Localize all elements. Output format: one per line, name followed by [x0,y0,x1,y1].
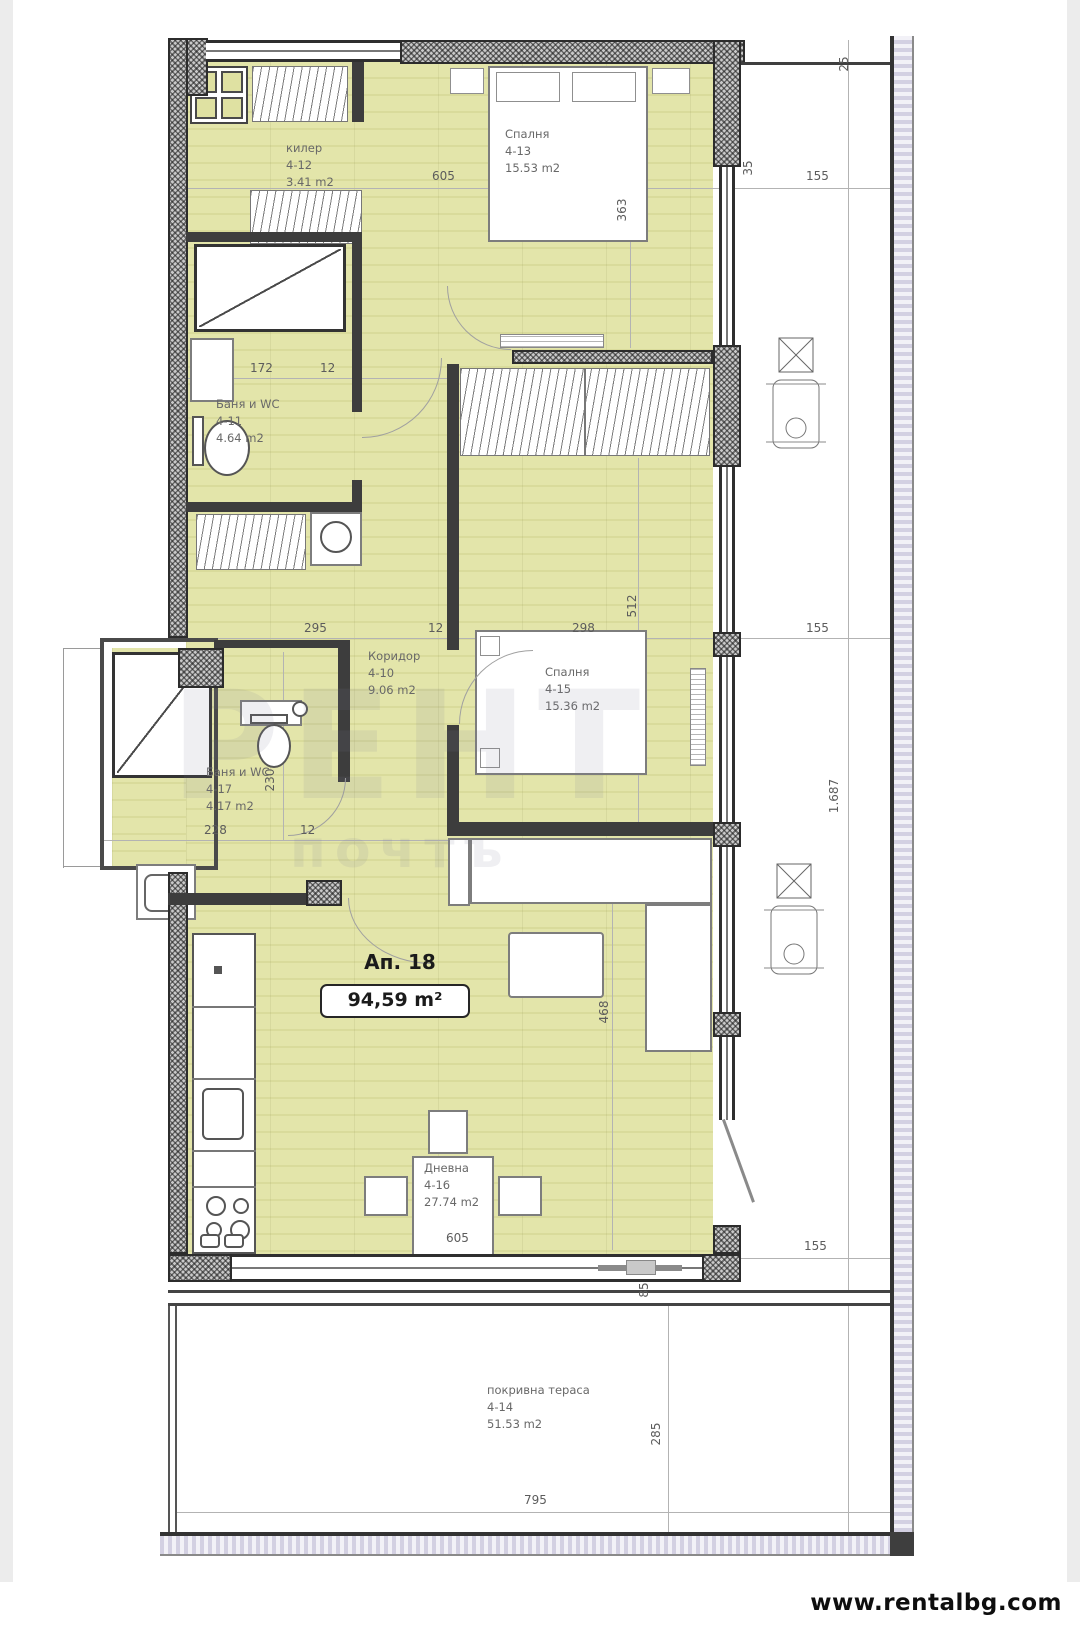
room-area: 15.53 m2 [505,160,560,177]
bathtub [194,244,346,332]
dim-line-right-vertical [848,40,849,1540]
room-area: 27.74 m2 [424,1194,479,1211]
radiator [500,334,604,348]
dim-label-85: 85 [638,1272,650,1308]
footer-bar: www.rentalbg.com [0,1582,1080,1643]
room-code: 4-14 [487,1399,590,1416]
dim-label-605-bottom: 605 [446,1232,469,1244]
shaft-cell [195,97,217,119]
dim-label-363: 363 [616,192,628,228]
hall-cabinet [196,514,306,570]
dim-line-468 [612,847,613,1250]
room-code: 4-11 [216,413,280,430]
room-area: 51.53 m2 [487,1416,590,1433]
dim-label-512: 512 [626,588,638,624]
dim-label-155-top: 155 [806,170,829,182]
room-label-bath1: Баня и WC 4-11 4.64 m2 [216,396,280,447]
coffee-table [508,932,604,998]
wall-bath1-top [186,232,362,242]
wardrobe-divider [584,368,586,456]
stove-burner [233,1198,249,1214]
window-living [719,847,735,1012]
dim-line-low-margin [741,1258,890,1259]
wall-bedroom1-bottom [512,350,713,364]
dim-label-155-low: 155 [804,1240,827,1252]
watermark-big: РЕНТ [170,660,650,834]
dim-label-795: 795 [524,1494,547,1506]
room-name: Дневна [424,1160,479,1177]
wall-corridor-living [168,893,322,905]
room-area: 3.41 m2 [286,174,334,191]
wall-bath2-top [214,640,350,648]
site-url: www.rentalbg.com [810,1590,1062,1616]
room-label-living: Дневна 4-16 27.74 m2 [424,1160,479,1211]
window-bedroom2 [719,657,735,822]
wall-right-pier [713,1012,741,1037]
terrace-left-wall [168,1306,177,1532]
terrace-step-band [168,1290,912,1306]
counter-divider [192,1186,256,1188]
dim-label-172: 172 [250,362,273,374]
counter-divider [192,1078,256,1080]
stove-burner [206,1196,226,1216]
room-label-bedroom1: Спалня 4-13 15.53 m2 [505,126,560,177]
annex-line [63,648,64,868]
wall-left-lower [168,872,188,1254]
window-bedroom1 [719,167,735,345]
shaft-cell [221,71,243,93]
wall-corridor-bedroom2 [447,364,459,650]
wall-right-pier [713,345,741,467]
kitchen-sink [202,1088,244,1140]
drain-symbol [764,336,828,454]
wall-top [400,40,745,64]
window-top [206,40,402,62]
dim-label-298: 298 [572,622,595,634]
bathtub-diagonal [199,249,341,327]
room-code: 4-13 [505,143,560,160]
room-code: 4-12 [286,157,334,174]
page-left-margin [0,0,13,1643]
terrace-parapet-bottom [160,1532,912,1556]
watermark-small: почтъ [290,820,512,880]
dim-line-terrace-width [168,1512,890,1513]
double-sink [200,1234,220,1248]
dim-label-12-b: 12 [428,622,443,634]
drain-symbol [762,862,826,980]
wall-pier [306,880,342,906]
wall-bottom-pier-right [702,1254,741,1282]
wall-right-pier [713,40,741,167]
room-label-storage: килер 4-12 3.41 m2 [286,140,334,191]
pillow [480,636,500,656]
counter-divider [192,1006,256,1008]
apartment-title: Ап. 18 [330,950,470,974]
terrace-parapet-right [890,36,914,1556]
terrace-door-leaf [722,1119,755,1203]
pillow [496,72,560,102]
washbasin-1 [190,338,234,402]
chair [498,1176,542,1216]
floor-plan-page: килер 4-12 3.41 m2 Спалня 4-13 15.53 m2 … [0,0,1080,1643]
wall-left-upper [168,38,188,638]
toilet-tank [192,416,204,466]
dim-label-295: 295 [304,622,327,634]
room-area: 4.64 m2 [216,430,280,447]
window-right [719,467,735,632]
window-living-2 [719,1037,735,1120]
room-name: Баня и WC [216,396,280,413]
washing-machine-drum [320,521,352,553]
dim-label-155-mid: 155 [806,622,829,634]
pillow [572,72,636,102]
parapet-corner [890,1532,914,1556]
appliance-knob [214,966,222,974]
sofa-side [645,904,712,1052]
double-sink [224,1234,244,1248]
dim-label-1687: 1.687 [828,778,840,814]
room-label-terrace: покривна тераса 4-14 51.53 m2 [487,1382,590,1433]
nightstand [652,68,690,94]
room-code: 4-16 [424,1177,479,1194]
radiator [690,668,706,766]
annex-line [63,648,100,649]
wall-right-pier [713,1225,741,1254]
chair [428,1110,468,1154]
wall-right-pier [713,822,741,847]
room-name: Спалня [505,126,560,143]
wall-right-pier [713,632,741,657]
counter-divider [192,1150,256,1152]
chair [364,1176,408,1216]
dim-label-25: 25 [838,46,850,82]
storage-shelf-top [252,66,348,122]
dim-label-12-a: 12 [320,362,335,374]
nightstand [450,68,484,94]
dim-label-285: 285 [650,1416,662,1452]
room-name: покривна тераса [487,1382,590,1399]
wall-stub-storage [352,62,364,122]
shaft-cell [221,97,243,119]
wall-bottom-pier-left [168,1254,232,1282]
dim-label-605-top: 605 [432,170,455,182]
dim-label-468: 468 [598,994,610,1030]
annex-line [63,866,100,867]
room-name: килер [286,140,334,157]
apartment-area-badge: 94,59 m² [320,984,470,1018]
dim-label-35: 35 [742,150,754,186]
wall-bath1-right [352,232,362,412]
wall-bath1-bottom [186,502,362,512]
page-right-margin [1067,0,1080,1643]
terrace-top-line [741,62,890,65]
dim-line-terrace-height [668,1306,669,1532]
